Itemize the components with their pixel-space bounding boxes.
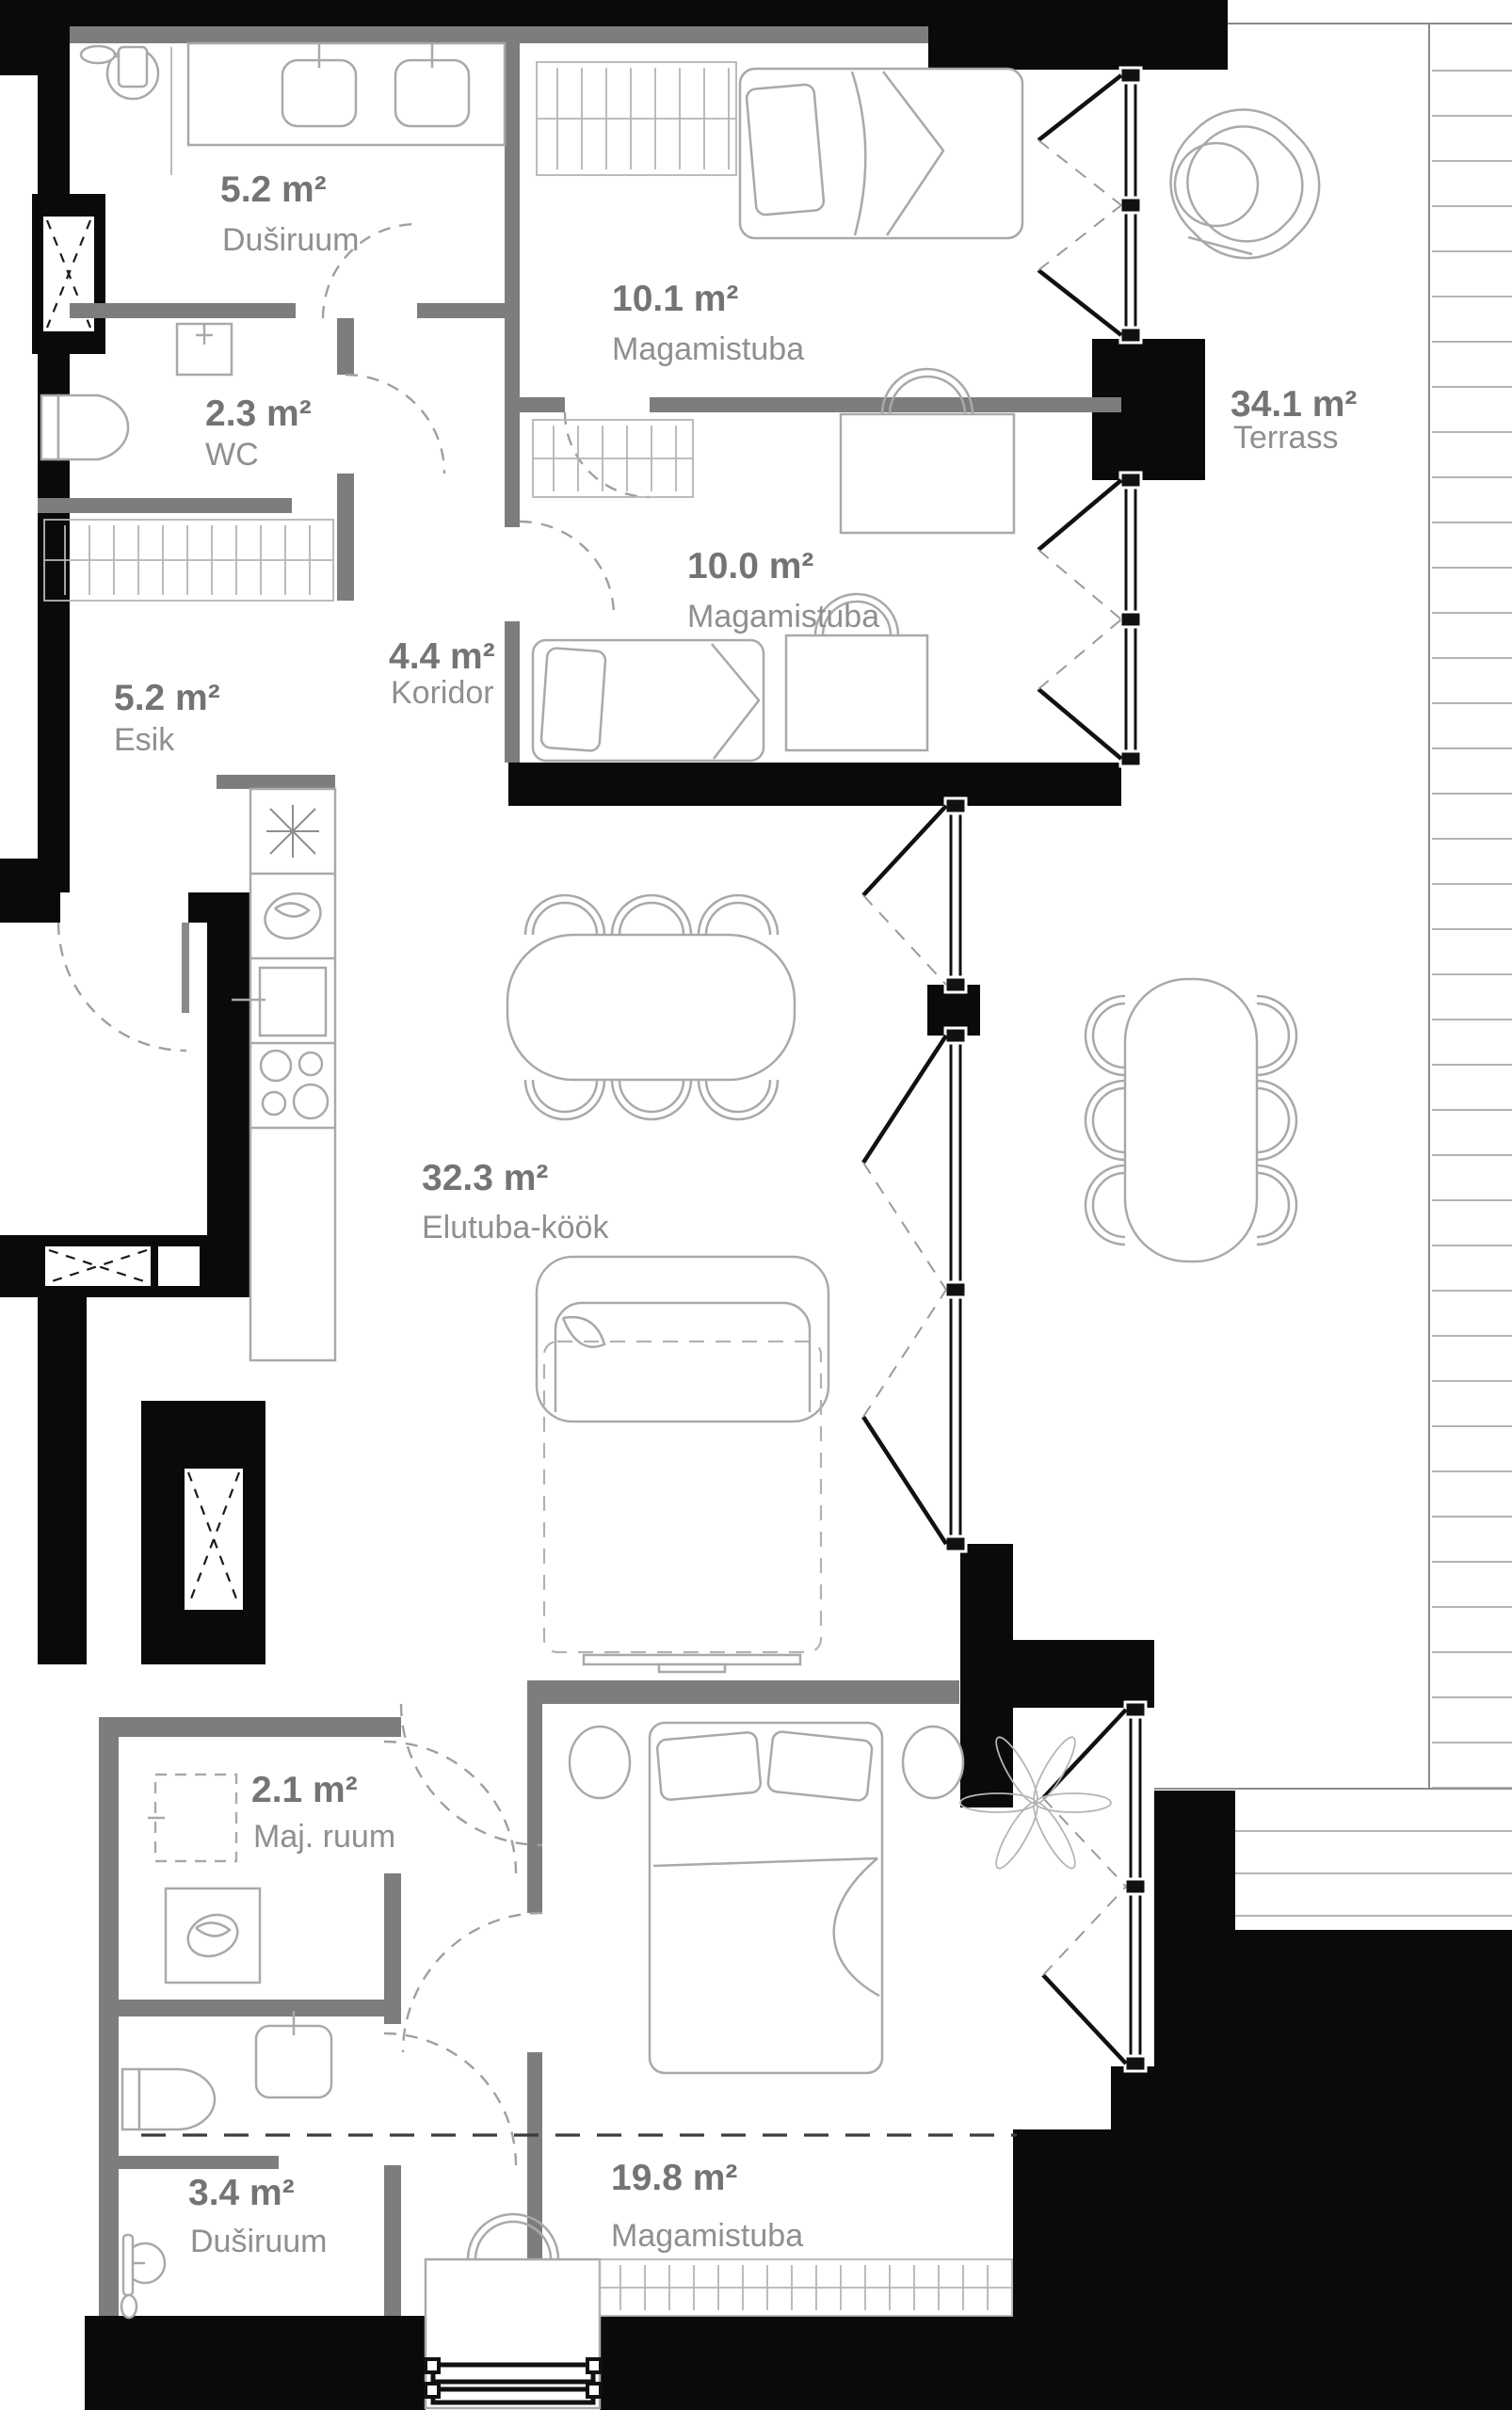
terrace-table xyxy=(1125,979,1257,1261)
window-mullion xyxy=(945,1028,966,1043)
label-terrass: Terrass xyxy=(1233,420,1338,456)
label-elutuba: Elutuba-köök xyxy=(422,1210,609,1245)
casement-wedge-dashed xyxy=(1038,205,1121,270)
desk-3 xyxy=(426,2259,600,2408)
window-mullion xyxy=(1120,68,1141,83)
area-maj-ruum: 2.1 m² xyxy=(251,1770,358,1810)
chair xyxy=(619,903,684,935)
chair xyxy=(525,895,604,935)
area-dusiruum-bottom: 3.4 m² xyxy=(188,2173,295,2213)
label-esik: Esik xyxy=(114,722,175,758)
label-dusiruum-top: Duširuum xyxy=(222,222,359,258)
window-mullion xyxy=(1120,751,1141,766)
casement-wedge xyxy=(1038,75,1121,140)
chair xyxy=(612,895,691,935)
window-mullion xyxy=(1125,1702,1146,1717)
label-magamistuba-2: Magamistuba xyxy=(687,599,879,635)
nightstand-left xyxy=(570,1727,630,1798)
toilet-2-icon xyxy=(122,2069,139,2129)
casement-wedge-dashed xyxy=(863,895,946,985)
desk-1 xyxy=(841,414,1014,533)
label-dusiruum-bottom: Duširuum xyxy=(190,2224,327,2259)
terrace-chair xyxy=(1086,1081,1125,1160)
tv xyxy=(584,1655,800,1672)
window-mullion xyxy=(945,798,966,813)
label-koridor: Koridor xyxy=(391,675,494,711)
lounge-chair-icon xyxy=(1144,83,1347,286)
door-arc-entry xyxy=(58,923,186,1051)
area-magamistuba-1: 10.1 m² xyxy=(612,279,738,319)
window-mullion xyxy=(1120,328,1141,343)
vent-shaft-box xyxy=(158,1246,200,1286)
casement-wedge-dashed xyxy=(1038,140,1121,205)
floor-plan-page: 5.2 m² Duširuum 10.1 m² Magamistuba 2.3 … xyxy=(0,0,1512,2410)
chair xyxy=(525,1080,604,1119)
stove-icon xyxy=(266,805,319,858)
plant-leaf xyxy=(1027,1798,1081,1872)
area-wc: 2.3 m² xyxy=(205,394,312,434)
label-magamistuba-1: Magamistuba xyxy=(612,331,804,367)
terrace-chair xyxy=(1257,1004,1289,1068)
deck-planks xyxy=(1235,71,1512,1916)
casement-wedge xyxy=(1038,270,1121,335)
casement-wedge xyxy=(1043,1975,1126,2064)
alcove-window xyxy=(426,2359,601,2402)
chair xyxy=(699,1080,778,1119)
floor-plan-drawing: 5.2 m² Duširuum 10.1 m² Magamistuba 2.3 … xyxy=(0,0,1512,2410)
area-terrass: 34.1 m² xyxy=(1231,384,1357,425)
area-elutuba: 32.3 m² xyxy=(422,1158,548,1198)
door-arc-wc xyxy=(346,375,444,474)
window-mullion xyxy=(1125,2056,1146,2071)
area-magamistuba-3: 19.8 m² xyxy=(611,2158,737,2198)
window-mullion xyxy=(1125,1879,1146,1894)
label-maj-ruum: Maj. ruum xyxy=(253,1819,395,1855)
casement-wedge xyxy=(863,1417,946,1544)
area-koridor: 4.4 m² xyxy=(389,636,495,677)
chair xyxy=(612,1080,691,1119)
dining-table xyxy=(507,895,795,1119)
desk-2 xyxy=(786,635,927,750)
chair xyxy=(706,903,770,935)
plant-leaf xyxy=(989,1798,1043,1872)
area-dusiruum-top: 5.2 m² xyxy=(220,169,327,210)
door-arc-bedroom-3 xyxy=(403,1913,542,2052)
chair xyxy=(533,1080,597,1112)
sink-2-icon xyxy=(256,2026,331,2097)
casement-wedge-dashed xyxy=(863,1290,946,1417)
area-esik: 5.2 m² xyxy=(114,678,220,718)
terrace-chair xyxy=(1086,996,1125,1075)
entry-door-leaf xyxy=(182,923,189,1013)
toilet-icon xyxy=(41,395,58,459)
casement-wedge xyxy=(863,1036,946,1163)
sofa xyxy=(537,1257,828,1652)
area-magamistuba-2: 10.0 m² xyxy=(687,546,813,586)
terrace-chair xyxy=(1257,1088,1289,1152)
window-mullion xyxy=(945,977,966,992)
terrace-chair xyxy=(1093,1004,1125,1068)
terrace-chair xyxy=(1257,1165,1296,1245)
window-mullion xyxy=(1120,473,1141,488)
window-mullion xyxy=(945,1282,966,1297)
window-mullion xyxy=(945,1536,966,1551)
terrace-chair xyxy=(1257,1081,1296,1160)
casement-wedge-dashed xyxy=(1038,550,1121,619)
plant-leaf xyxy=(1027,1733,1081,1807)
label-magamistuba-3: Magamistuba xyxy=(611,2218,803,2254)
casement-wedge-dashed xyxy=(863,1163,946,1290)
chair xyxy=(706,1080,770,1112)
vent-shaft-box xyxy=(45,1246,151,1286)
window-mullion xyxy=(1120,198,1141,213)
door-arc-maj-ruum xyxy=(384,1742,516,1873)
vent-shaft-box xyxy=(185,1469,243,1610)
nightstand-right xyxy=(903,1727,963,1798)
terrace-chair xyxy=(1257,1173,1289,1237)
terrace-area xyxy=(1136,24,1512,1916)
window-mullion xyxy=(1120,612,1141,627)
chair xyxy=(619,1080,684,1112)
casement-wedge xyxy=(1038,689,1121,759)
label-wc: WC xyxy=(205,437,259,473)
terrace-chair xyxy=(1093,1088,1125,1152)
casement-wedge xyxy=(863,806,946,895)
casement-wedge-dashed xyxy=(1043,1887,1126,1975)
casement-wedge xyxy=(1038,480,1121,550)
bedroom-1-furniture xyxy=(740,69,1022,533)
door-arc-bedroom-2 xyxy=(520,522,614,616)
terrace-chair xyxy=(1086,1165,1125,1245)
terrace-chair xyxy=(1093,1173,1125,1237)
casement-wedge-dashed xyxy=(1038,619,1121,689)
dusiruum-top-fixtures xyxy=(81,43,505,175)
terrace-chair xyxy=(1257,996,1296,1075)
dryer-icon xyxy=(155,1775,236,1861)
chair xyxy=(699,895,778,935)
chair xyxy=(533,903,597,935)
maj-ruum-fixtures xyxy=(148,1775,260,1983)
door-arc-dusiruum-bottom xyxy=(384,2033,516,2165)
